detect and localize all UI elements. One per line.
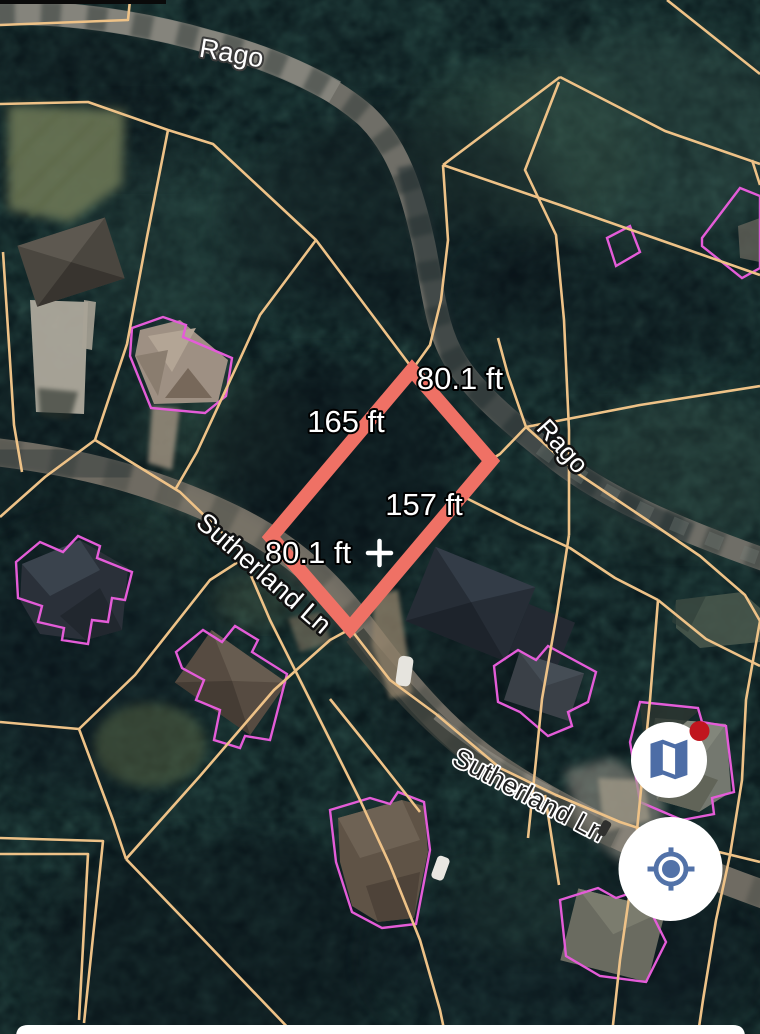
svg-text:157 ft: 157 ft xyxy=(385,487,463,522)
svg-text:80.1 ft: 80.1 ft xyxy=(417,361,504,396)
svg-text:165 ft: 165 ft xyxy=(307,404,385,439)
